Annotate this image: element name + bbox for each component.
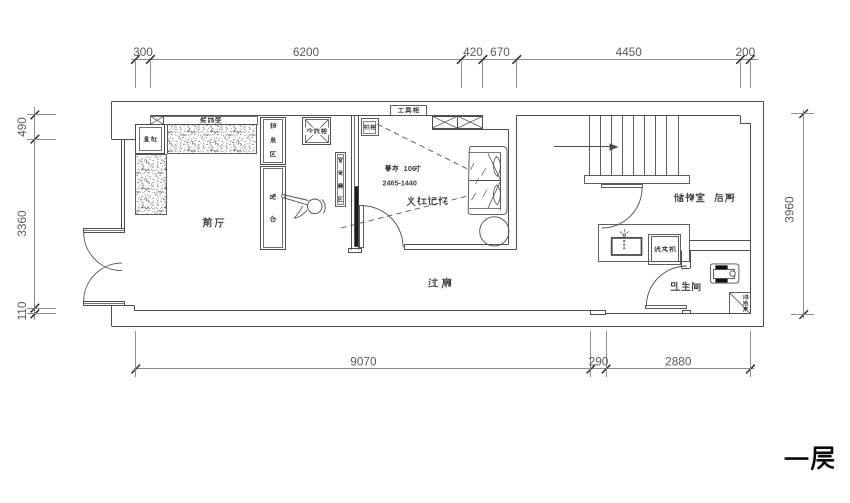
svg-text:200: 200: [735, 45, 755, 59]
svg-text:3360: 3360: [15, 210, 29, 237]
svg-text:2465-1440: 2465-1440: [383, 178, 417, 187]
svg-text:300: 300: [133, 45, 153, 59]
svg-text:4450: 4450: [616, 45, 643, 59]
svg-text:490: 490: [15, 117, 29, 137]
svg-text:420: 420: [463, 45, 483, 59]
svg-text:106: 106: [404, 164, 417, 173]
svg-text:670: 670: [490, 45, 510, 59]
svg-text:290: 290: [589, 355, 609, 369]
svg-text:110: 110: [15, 301, 29, 320]
svg-text:3960: 3960: [783, 196, 797, 223]
svg-text:6200: 6200: [293, 45, 320, 59]
svg-text:2880: 2880: [665, 355, 692, 369]
svg-text:9070: 9070: [350, 355, 377, 369]
